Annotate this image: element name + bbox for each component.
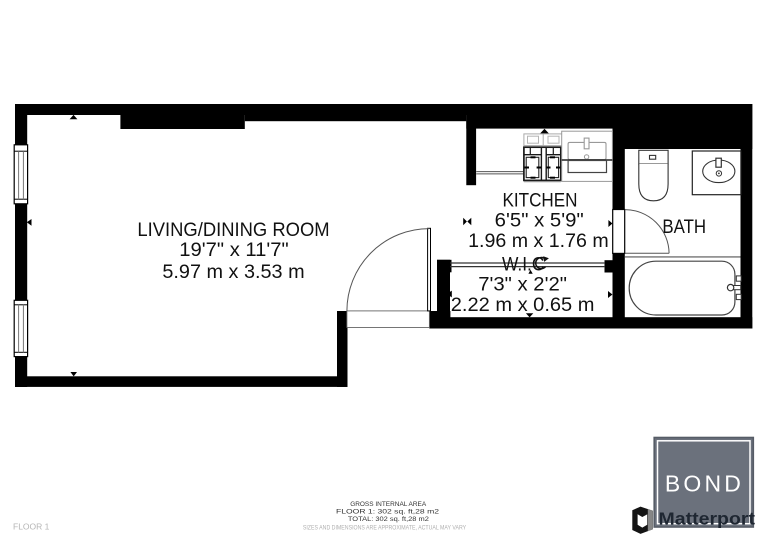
svg-text:FLOOR 1: FLOOR 1: [13, 522, 50, 532]
svg-text:GROSS INTERNAL AREA: GROSS INTERNAL AREA: [350, 501, 427, 508]
svg-text:TOTAL: 302 sq. ft,28 m2: TOTAL: 302 sq. ft,28 m2: [348, 516, 429, 523]
svg-text:5.97 m x 3.53 m: 5.97 m x 3.53 m: [162, 262, 304, 283]
svg-text:FLOOR 1: 302 sq. ft,28 m2: FLOOR 1: 302 sq. ft,28 m2: [336, 509, 439, 516]
svg-text:6'5" x 5'9": 6'5" x 5'9": [495, 211, 584, 232]
svg-text:2.22 m x 0.65 m: 2.22 m x 0.65 m: [451, 295, 595, 316]
svg-text:BOND: BOND: [665, 470, 744, 496]
svg-text:Matterport: Matterport: [659, 509, 756, 529]
svg-text:7'3" x 2'2": 7'3" x 2'2": [478, 275, 567, 296]
svg-text:BATH: BATH: [662, 217, 706, 238]
svg-text:KITCHEN: KITCHEN: [503, 190, 578, 211]
svg-text:19'7" x 11'7": 19'7" x 11'7": [179, 240, 288, 261]
svg-text:1.96 m x 1.76 m: 1.96 m x 1.76 m: [468, 231, 609, 252]
svg-text:SIZES AND DIMENSIONS ARE APPRO: SIZES AND DIMENSIONS ARE APPROXIMATE, AC…: [303, 525, 466, 532]
svg-text:LIVING/DINING ROOM: LIVING/DINING ROOM: [137, 220, 329, 241]
svg-text:W.I.C: W.I.C: [502, 255, 545, 276]
